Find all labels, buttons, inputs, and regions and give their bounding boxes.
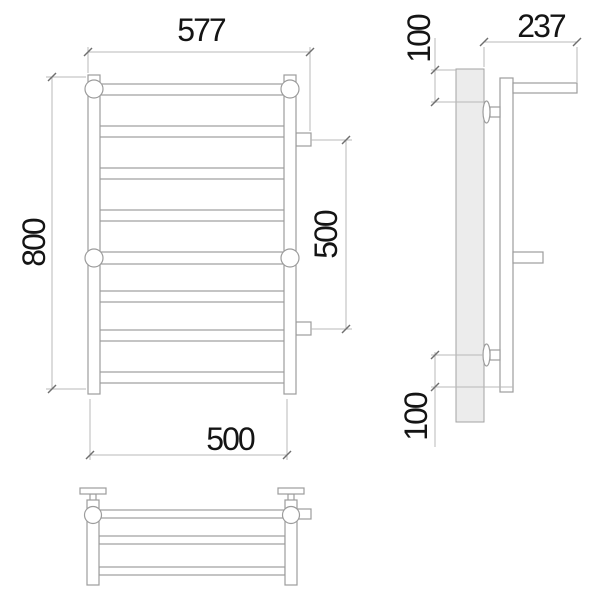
middle-bracket-tab — [513, 252, 543, 263]
dim-overall-depth: 237 — [480, 8, 581, 82]
rung — [99, 291, 285, 302]
bottom-bar — [99, 372, 285, 383]
rung — [99, 126, 285, 137]
side-view — [456, 69, 577, 422]
dim-label-top-mount-offset: 100 — [401, 14, 437, 63]
shelf-bracket — [513, 83, 577, 93]
mount-ring — [85, 507, 102, 524]
mount-ring — [281, 80, 299, 98]
dim-connection-spacing: 500 — [308, 136, 352, 333]
rung — [99, 210, 285, 221]
wall-bracket-cap — [278, 488, 304, 494]
wall-strip — [456, 69, 484, 422]
bottom-connection-union — [296, 322, 311, 335]
side-post — [500, 78, 513, 392]
dim-overall-height: 800 — [16, 73, 86, 393]
bottom-screw-head — [483, 344, 490, 366]
dim-label-rail-width: 500 — [206, 421, 255, 457]
left-post — [88, 75, 100, 394]
mount-ring — [85, 249, 103, 267]
bottom-screw-shaft — [490, 350, 500, 360]
bar-profile — [99, 510, 285, 518]
top-screw-head — [483, 101, 490, 123]
middle-bar — [99, 252, 285, 264]
rung — [99, 330, 285, 341]
dim-label-overall-height: 800 — [16, 218, 52, 267]
wall-bracket-cap — [80, 488, 106, 494]
towel-rail-technical-drawing: 577 800 500 500 — [0, 0, 600, 600]
dim-label-connection-spacing: 500 — [308, 210, 344, 259]
top-connection-union — [296, 133, 311, 146]
mount-ring — [85, 80, 103, 98]
front-view — [85, 75, 311, 394]
dim-label-bottom-mount-offset: 100 — [398, 392, 434, 441]
top-bar — [99, 84, 285, 95]
mount-ring — [281, 249, 299, 267]
top-screw-shaft — [490, 107, 500, 117]
dim-label-overall-depth: 237 — [517, 8, 566, 44]
dim-overall-width: 577 — [84, 12, 314, 131]
technical-drawing-page: 577 800 500 500 — [0, 0, 600, 600]
right-post — [284, 75, 296, 394]
bottom-view — [80, 488, 311, 585]
bar-profile — [99, 567, 285, 575]
dim-label-overall-width: 577 — [177, 12, 226, 48]
dim-rail-width: 500 — [86, 399, 291, 460]
rung — [99, 168, 285, 179]
bar-profile — [99, 536, 285, 544]
mount-ring — [283, 507, 300, 524]
